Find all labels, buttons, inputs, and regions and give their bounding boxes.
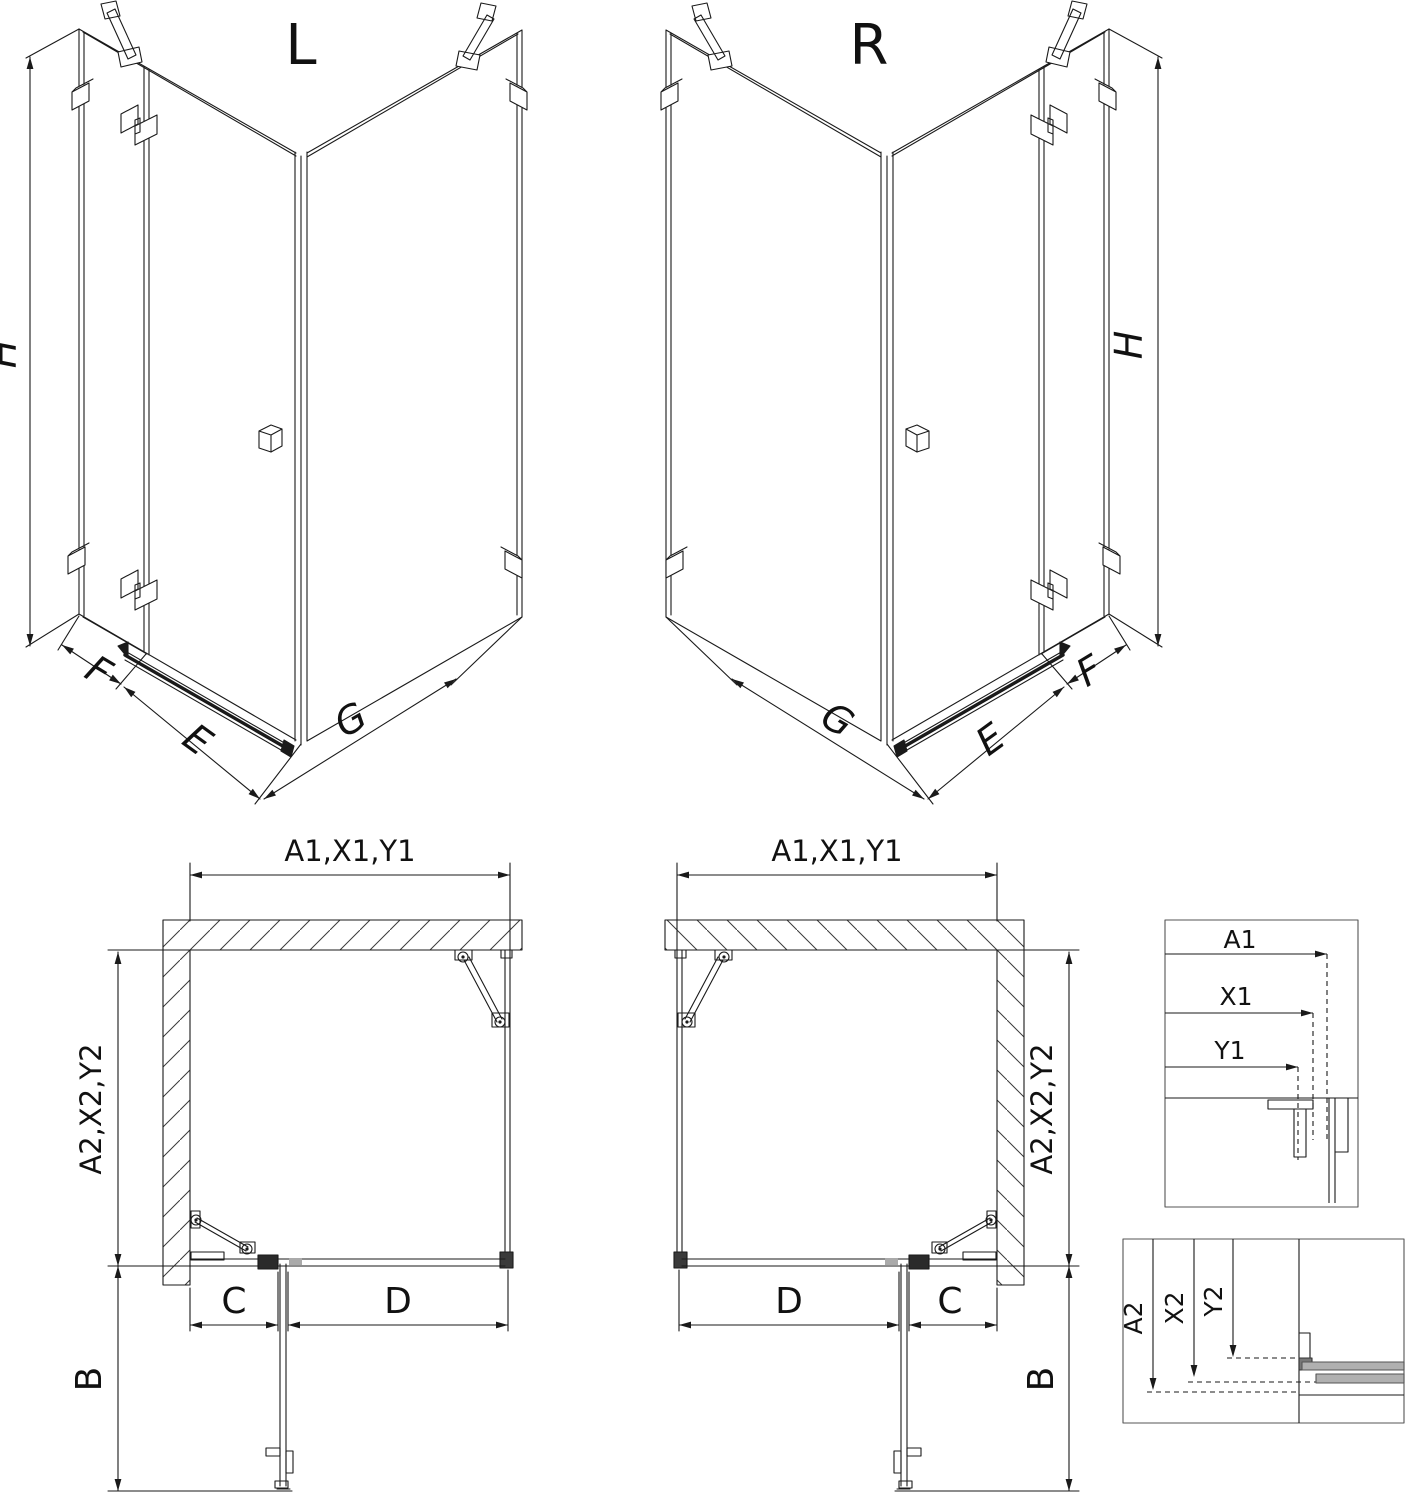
dim-label-c-left: C: [221, 1281, 246, 1322]
detail-depth-sill-bar-lower: [1316, 1374, 1404, 1383]
dim-label-g-right: G: [814, 693, 862, 746]
dim-label-e-right: E: [968, 715, 1013, 765]
detail-box-depth: [1123, 1239, 1404, 1423]
dim-label-width-top-right: A1,X1,Y1: [771, 834, 902, 868]
detail-width-reference-dashes: [1298, 954, 1327, 1160]
dim-label-height-right: H: [1107, 331, 1151, 360]
support-brace-left: [101, 1, 142, 67]
detail-label-x1: X1: [1219, 982, 1252, 1011]
iso-right-title: R: [850, 13, 889, 78]
dim-label-height-left: H: [0, 340, 25, 369]
dim-label-f-left: F: [78, 646, 120, 696]
detail-label-y1: Y1: [1213, 1036, 1245, 1065]
detail-label-a2: A2: [1119, 1301, 1148, 1334]
bottom-sill: [190, 1259, 505, 1266]
door-hinge-block: [258, 1255, 278, 1269]
plan-view-right: [665, 863, 1079, 1491]
dim-label-f-right: F: [1069, 646, 1111, 696]
detail-label-a1: A1: [1223, 925, 1256, 954]
detail-width-sill-bracket: [1268, 1100, 1313, 1109]
dim-label-b-right: B: [1021, 1367, 1062, 1392]
iso-left-title: L: [285, 13, 316, 78]
wall-top-hatched: [163, 920, 522, 950]
detail-depth-reference-dashes: [1147, 1358, 1320, 1392]
wall-bracket-side-bottom: [501, 547, 522, 578]
door-hinge-bottom: [121, 570, 157, 610]
support-brace-right: [456, 3, 496, 70]
sill-end-right: [281, 740, 294, 757]
dim-label-depth-side-right: A2,X2,Y2: [1025, 1043, 1059, 1174]
dim-label-b-left: B: [69, 1367, 110, 1392]
wall-side-hatched: [163, 950, 190, 1285]
door-handle: [259, 425, 282, 452]
dim-label-c-right: C: [937, 1281, 962, 1322]
dim-label-d-left: D: [384, 1281, 412, 1322]
dim-label-g-left: G: [327, 693, 375, 746]
detail-label-x2: X2: [1160, 1291, 1189, 1324]
detail-width-sill-tab: [1294, 1109, 1306, 1157]
detail-depth-sill-bar-upper: [1302, 1362, 1404, 1370]
sill-end-left: [118, 642, 128, 658]
detail-box-width: [1165, 920, 1358, 1207]
dim-label-d-right: D: [775, 1281, 803, 1322]
wall-bracket-front-top: [72, 79, 93, 110]
shower-enclosure-dimension-diagram: L R H H F E G F E G A1,X1,Y1 A1,X1,Y1 A2…: [0, 0, 1410, 1502]
detail-width-glass-profile: [1329, 1098, 1348, 1203]
detail-label-y2: Y2: [1199, 1285, 1228, 1317]
sill-profile-mark: [289, 1258, 302, 1265]
dim-label-e-left: E: [175, 715, 220, 765]
door-hinge-top: [121, 105, 157, 145]
brace-top-bar: [464, 957, 502, 1022]
side-panel-glass: [505, 950, 510, 1262]
detail-depth-step-profile: [1299, 1333, 1310, 1360]
dim-label-depth-side-left: A2,X2,Y2: [74, 1043, 108, 1174]
plan-view-left: [108, 863, 522, 1491]
dim-label-width-top-left: A1,X1,Y1: [284, 834, 415, 868]
diagram-canvas: L R H H F E G F E G A1,X1,Y1 A1,X1,Y1 A2…: [0, 0, 1410, 1502]
